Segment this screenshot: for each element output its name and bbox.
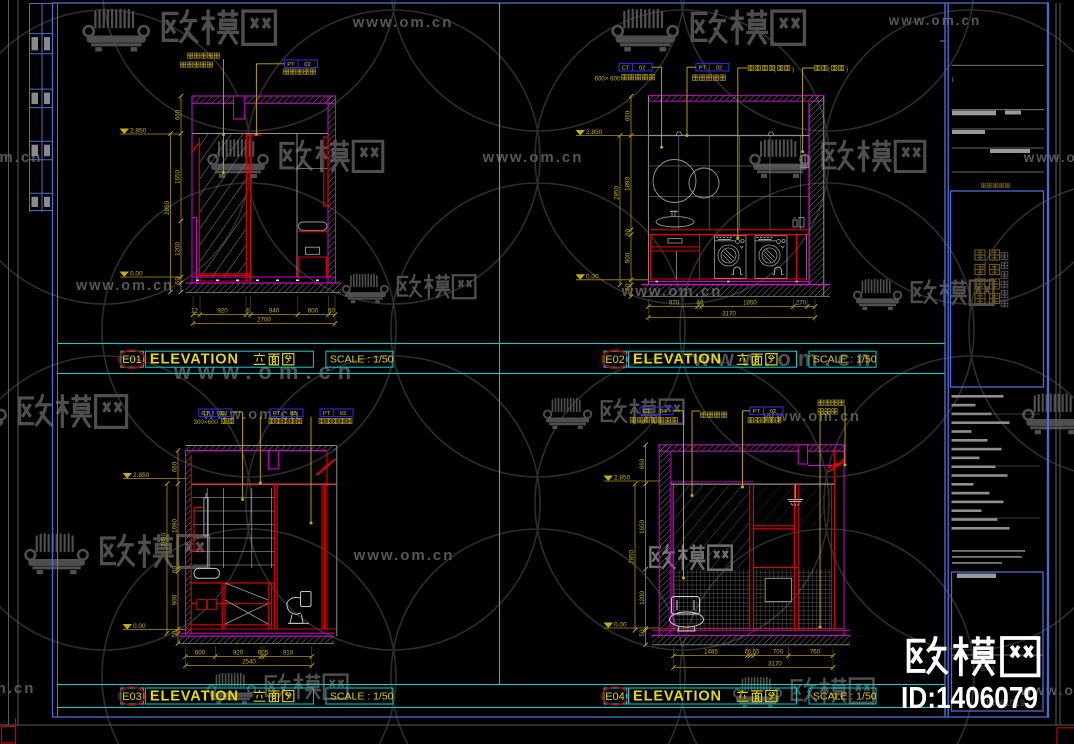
svg-text:2850: 2850 xyxy=(164,201,171,215)
svg-text:2.850: 2.850 xyxy=(130,128,147,135)
svg-text:SCALE : 1/50: SCALE : 1/50 xyxy=(330,691,394,703)
svg-text:760: 760 xyxy=(810,649,821,656)
svg-text:2850: 2850 xyxy=(629,550,636,564)
svg-text:1485: 1485 xyxy=(704,649,718,656)
svg-text:www.om.cn: www.om.cn xyxy=(352,14,454,31)
svg-text:PT: PT xyxy=(323,411,331,417)
svg-text:CT: CT xyxy=(201,411,209,417)
svg-text:660: 660 xyxy=(175,109,182,120)
svg-text:SCALE : 1/50: SCALE : 1/50 xyxy=(813,354,877,366)
svg-text:2700: 2700 xyxy=(257,317,271,324)
svg-text:1200: 1200 xyxy=(175,242,182,256)
svg-text:0.00: 0.00 xyxy=(130,271,143,278)
svg-text:920: 920 xyxy=(217,308,228,315)
svg-text:900: 900 xyxy=(625,252,632,263)
svg-text:02: 02 xyxy=(340,411,346,417)
svg-text:ELEVATION: ELEVATION xyxy=(150,689,239,705)
svg-text:04: 04 xyxy=(660,409,667,415)
svg-text:920: 920 xyxy=(233,650,244,657)
svg-text:2850: 2850 xyxy=(161,533,168,547)
svg-text:3170: 3170 xyxy=(768,661,782,668)
svg-text:): ) xyxy=(846,66,848,73)
svg-text:www.om.cn: www.om.cn xyxy=(888,13,982,28)
svg-text:1690: 1690 xyxy=(172,519,179,533)
svg-text:): ) xyxy=(792,66,794,73)
svg-text:1650: 1650 xyxy=(639,520,646,534)
svg-text:www.om.cn: www.om.cn xyxy=(482,149,584,166)
svg-text:660: 660 xyxy=(639,458,646,469)
svg-text:900: 900 xyxy=(172,594,179,605)
svg-text:0.00: 0.00 xyxy=(586,273,599,280)
svg-text:2.850: 2.850 xyxy=(586,129,603,136)
svg-text:1850: 1850 xyxy=(743,300,757,307)
svg-text:270: 270 xyxy=(796,300,807,307)
svg-text:02: 02 xyxy=(770,409,776,415)
svg-text:600: 600 xyxy=(195,650,206,657)
svg-text:2850: 2850 xyxy=(614,186,621,200)
svg-text:605: 605 xyxy=(258,650,269,657)
svg-text:ELEVATION: ELEVATION xyxy=(633,352,722,368)
svg-text:SCALE : 1/50: SCALE : 1/50 xyxy=(330,354,394,366)
svg-text:CT: CT xyxy=(622,65,630,71)
svg-text:50: 50 xyxy=(639,629,646,636)
svg-text:ELEVATION: ELEVATION xyxy=(633,689,722,705)
svg-text:970: 970 xyxy=(669,300,680,307)
svg-text:CT: CT xyxy=(643,409,651,415)
svg-text:02: 02 xyxy=(639,65,645,71)
svg-text:SCALE : 1/50: SCALE : 1/50 xyxy=(813,691,877,703)
svg-text:02: 02 xyxy=(716,65,722,71)
svg-text:PT: PT xyxy=(287,62,295,68)
svg-text:www.om.cn: www.om.cn xyxy=(75,278,174,294)
svg-text:0.00: 0.00 xyxy=(614,622,627,629)
svg-text:E03: E03 xyxy=(122,691,142,703)
svg-text:600× 600: 600× 600 xyxy=(595,76,622,83)
svg-text:2540: 2540 xyxy=(242,659,256,666)
svg-text:600: 600 xyxy=(308,308,319,315)
svg-text:2.850: 2.850 xyxy=(133,472,150,479)
svg-text:3170: 3170 xyxy=(722,311,736,318)
svg-text:03: 03 xyxy=(219,411,225,417)
svg-text:300×600: 300×600 xyxy=(194,419,219,426)
svg-text:940: 940 xyxy=(269,308,280,315)
svg-text:PT: PT xyxy=(273,411,281,417)
svg-text:E04: E04 xyxy=(605,691,625,703)
svg-text:0.00: 0.00 xyxy=(133,623,146,630)
svg-text:1650: 1650 xyxy=(175,170,182,184)
svg-text:02: 02 xyxy=(304,62,310,68)
svg-text:PT: PT xyxy=(753,409,761,415)
svg-text:ID:1406079: ID:1406079 xyxy=(901,680,1038,715)
svg-text:1890: 1890 xyxy=(625,177,632,191)
svg-text:700: 700 xyxy=(773,649,784,656)
svg-text:1200: 1200 xyxy=(639,591,646,605)
svg-text:www.om.cn: www.om.cn xyxy=(353,547,455,564)
svg-text:660: 660 xyxy=(625,110,632,121)
svg-text:ELEVATION: ELEVATION xyxy=(150,352,239,368)
svg-text:660: 660 xyxy=(172,461,179,472)
svg-text:02: 02 xyxy=(290,411,296,417)
svg-text:910: 910 xyxy=(283,650,294,657)
svg-text:E02: E02 xyxy=(605,354,625,366)
svg-text:50: 50 xyxy=(625,283,632,290)
svg-text:PT: PT xyxy=(699,65,707,71)
svg-text:2.850: 2.850 xyxy=(614,475,631,482)
svg-text:E01: E01 xyxy=(122,354,142,366)
